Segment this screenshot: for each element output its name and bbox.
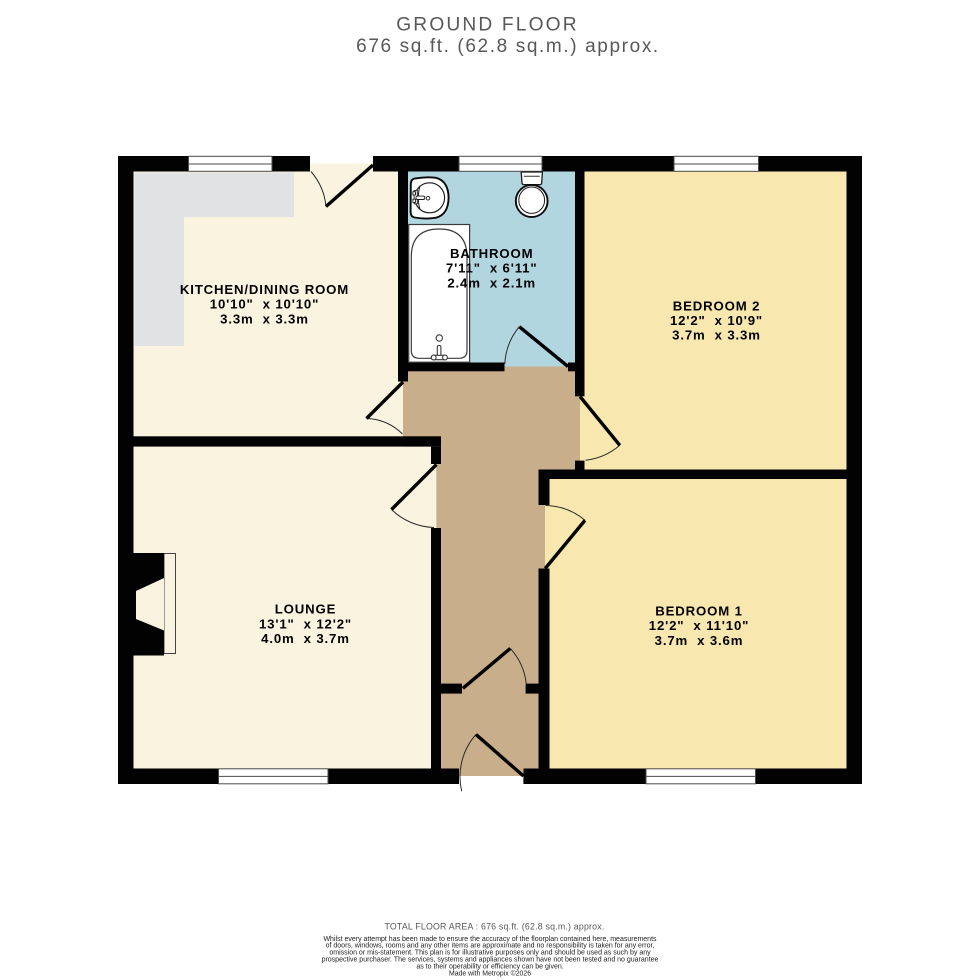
svg-text:3.3m x 3.3m: 3.3m x 3.3m bbox=[220, 311, 309, 326]
svg-text:3.7m x 3.6m: 3.7m x 3.6m bbox=[655, 633, 744, 648]
svg-text:12'2" x 10'9": 12'2" x 10'9" bbox=[670, 313, 763, 328]
svg-text:LOUNGE: LOUNGE bbox=[275, 602, 337, 617]
svg-text:10'10" x 10'10": 10'10" x 10'10" bbox=[210, 297, 319, 312]
svg-text:4.0m x 3.7m: 4.0m x 3.7m bbox=[261, 631, 350, 646]
svg-text:13'1" x 12'2": 13'1" x 12'2" bbox=[259, 616, 352, 631]
svg-text:7'11" x 6'11": 7'11" x 6'11" bbox=[446, 261, 538, 276]
svg-text:BEDROOM 2: BEDROOM 2 bbox=[673, 298, 761, 313]
svg-text:12'2" x 11'10": 12'2" x 11'10" bbox=[649, 618, 749, 633]
svg-text:676 sq.ft. (62.8 sq.m.) approx: 676 sq.ft. (62.8 sq.m.) approx. bbox=[356, 36, 660, 57]
svg-text:Made with Metropix ©2026: Made with Metropix ©2026 bbox=[449, 969, 531, 977]
svg-text:3.7m x 3.3m: 3.7m x 3.3m bbox=[672, 328, 761, 343]
svg-text:BATHROOM: BATHROOM bbox=[450, 246, 533, 261]
svg-text:BEDROOM 1: BEDROOM 1 bbox=[655, 603, 743, 618]
svg-text:2.4m x 2.1m: 2.4m x 2.1m bbox=[447, 275, 536, 290]
svg-text:GROUND FLOOR: GROUND FLOOR bbox=[396, 14, 579, 35]
svg-text:TOTAL FLOOR AREA : 676 sq.ft.: TOTAL FLOOR AREA : 676 sq.ft. (62.8 sq.m… bbox=[384, 922, 604, 932]
svg-text:KITCHEN/DINING ROOM: KITCHEN/DINING ROOM bbox=[180, 282, 349, 297]
